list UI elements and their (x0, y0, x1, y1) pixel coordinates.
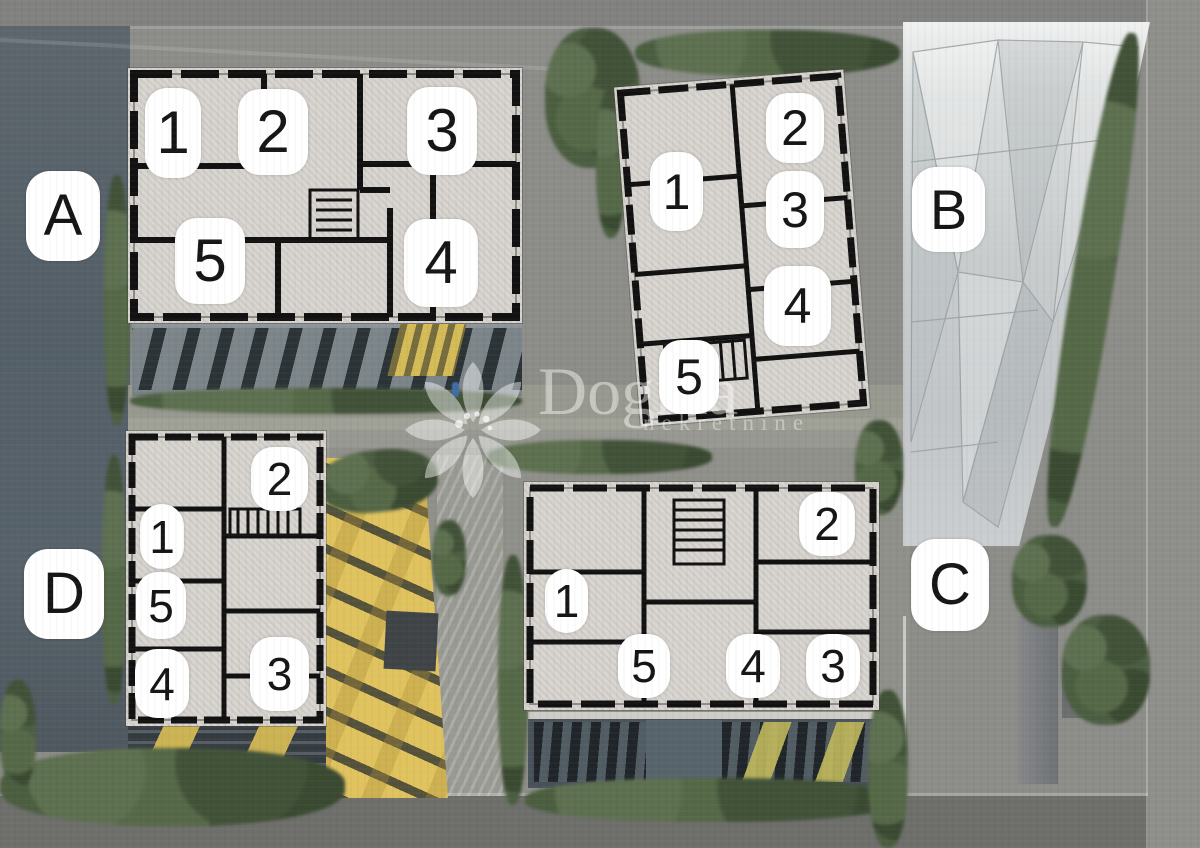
unit-badge-d-4: 4 (135, 649, 189, 718)
unit-badge-b-5: 5 (659, 340, 719, 414)
building-c-facade (528, 712, 880, 788)
unit-badge-d-5: 5 (136, 572, 186, 639)
building-c-windows-left (534, 722, 646, 782)
tree-right-of-c (868, 690, 908, 848)
building-c-wall-mid (646, 720, 722, 784)
unit-badge-a-2: 2 (238, 89, 308, 175)
unit-badge-d-3: 3 (250, 637, 309, 711)
unit-badge-c-1: 1 (545, 569, 588, 633)
unit-badge-a-1: 1 (145, 88, 201, 178)
hedge-right-of-c-label (1012, 535, 1087, 627)
unit-badge-d-2: 2 (251, 447, 308, 511)
unit-badge-b-1: 1 (650, 152, 703, 231)
bushes-below-c (525, 778, 900, 822)
unit-badge-b-4: 4 (764, 266, 831, 346)
unit-badge-b-2: 2 (766, 93, 824, 163)
unit-badge-c-5: 5 (618, 634, 670, 698)
trees-bottom-left (0, 680, 36, 790)
building-label-c: C (911, 539, 989, 631)
building-label-b: B (912, 167, 985, 252)
aerial-site-plan: Dogma nekretnine A B C D 1 2 3 5 4 2 1 3… (0, 0, 1200, 848)
watermark-subtitle-text: nekretnine (643, 410, 810, 436)
planters-bottom-right (1062, 615, 1150, 725)
road-right (1148, 0, 1200, 848)
unit-badge-c-3: 3 (806, 634, 860, 698)
trees-above-b-plan (635, 30, 900, 76)
hedge-left-of-a (104, 175, 130, 425)
hedge-left-of-d (102, 455, 126, 705)
shrubs-mid-left (432, 520, 466, 596)
unit-badge-a-5: 5 (175, 218, 245, 304)
building-label-a: A (26, 171, 100, 261)
unit-badge-c-2: 2 (799, 492, 855, 556)
retaining-wall-bottom-right (1018, 616, 1058, 784)
building-c-windows-right (722, 722, 874, 782)
road-right-sidewalk-line (1146, 0, 1148, 848)
bushes-below-d (0, 748, 345, 826)
small-dark-roof (384, 611, 439, 672)
unit-badge-c-4: 4 (726, 634, 780, 698)
unit-badge-a-3: 3 (407, 87, 477, 175)
building-label-d: D (24, 549, 104, 639)
unit-badge-d-1: 1 (140, 504, 184, 569)
building-c-parapet (528, 712, 880, 719)
unit-badge-b-3: 3 (766, 171, 824, 248)
unit-badge-a-4: 4 (404, 219, 478, 307)
